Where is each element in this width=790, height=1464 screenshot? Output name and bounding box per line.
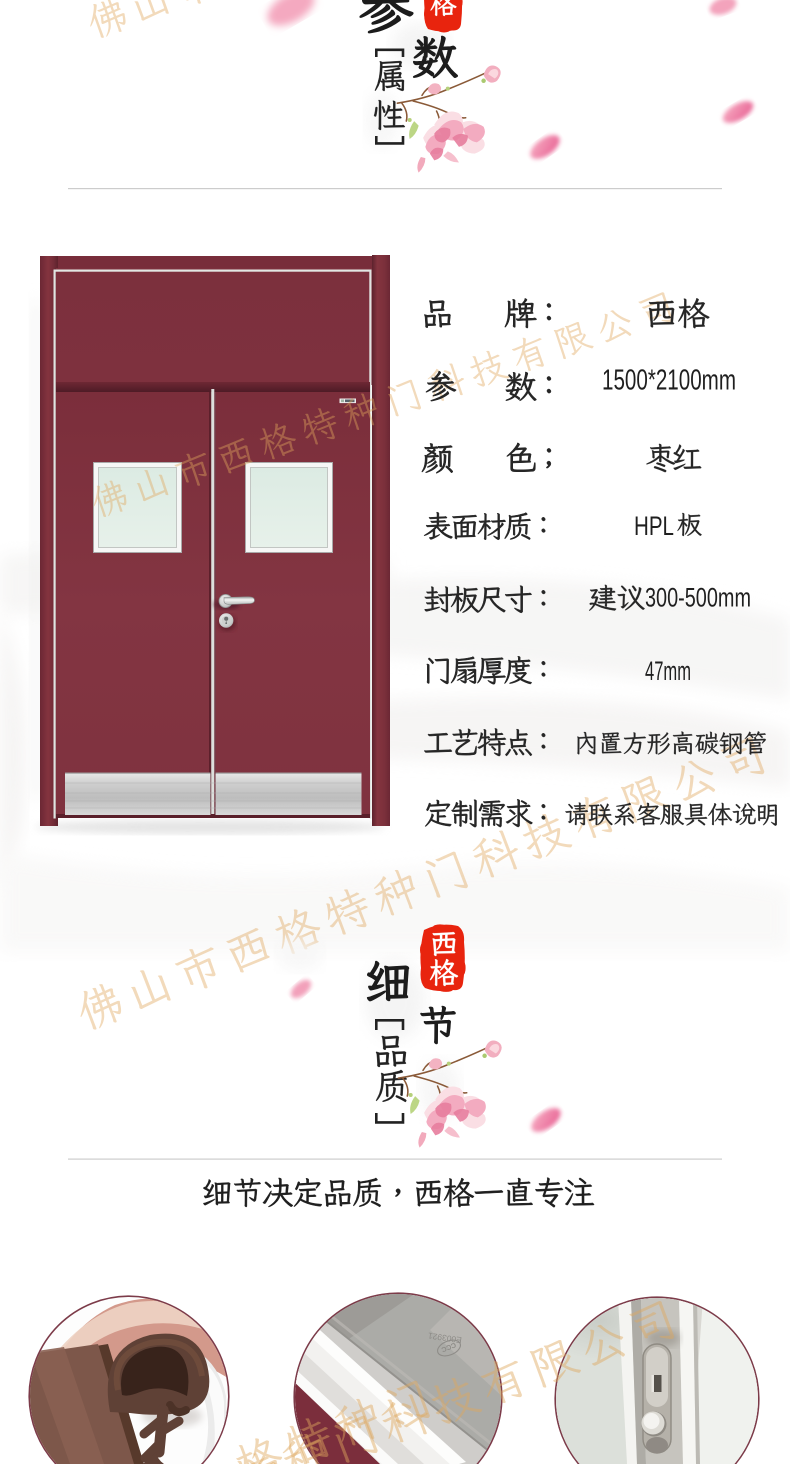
svg-text:300-500mm: 300-500mm	[645, 583, 751, 613]
svg-text:1500*2100mm: 1500*2100mm	[602, 365, 736, 397]
svg-text:47mm: 47mm	[645, 656, 691, 686]
svg-text:HPL: HPL	[634, 511, 674, 541]
